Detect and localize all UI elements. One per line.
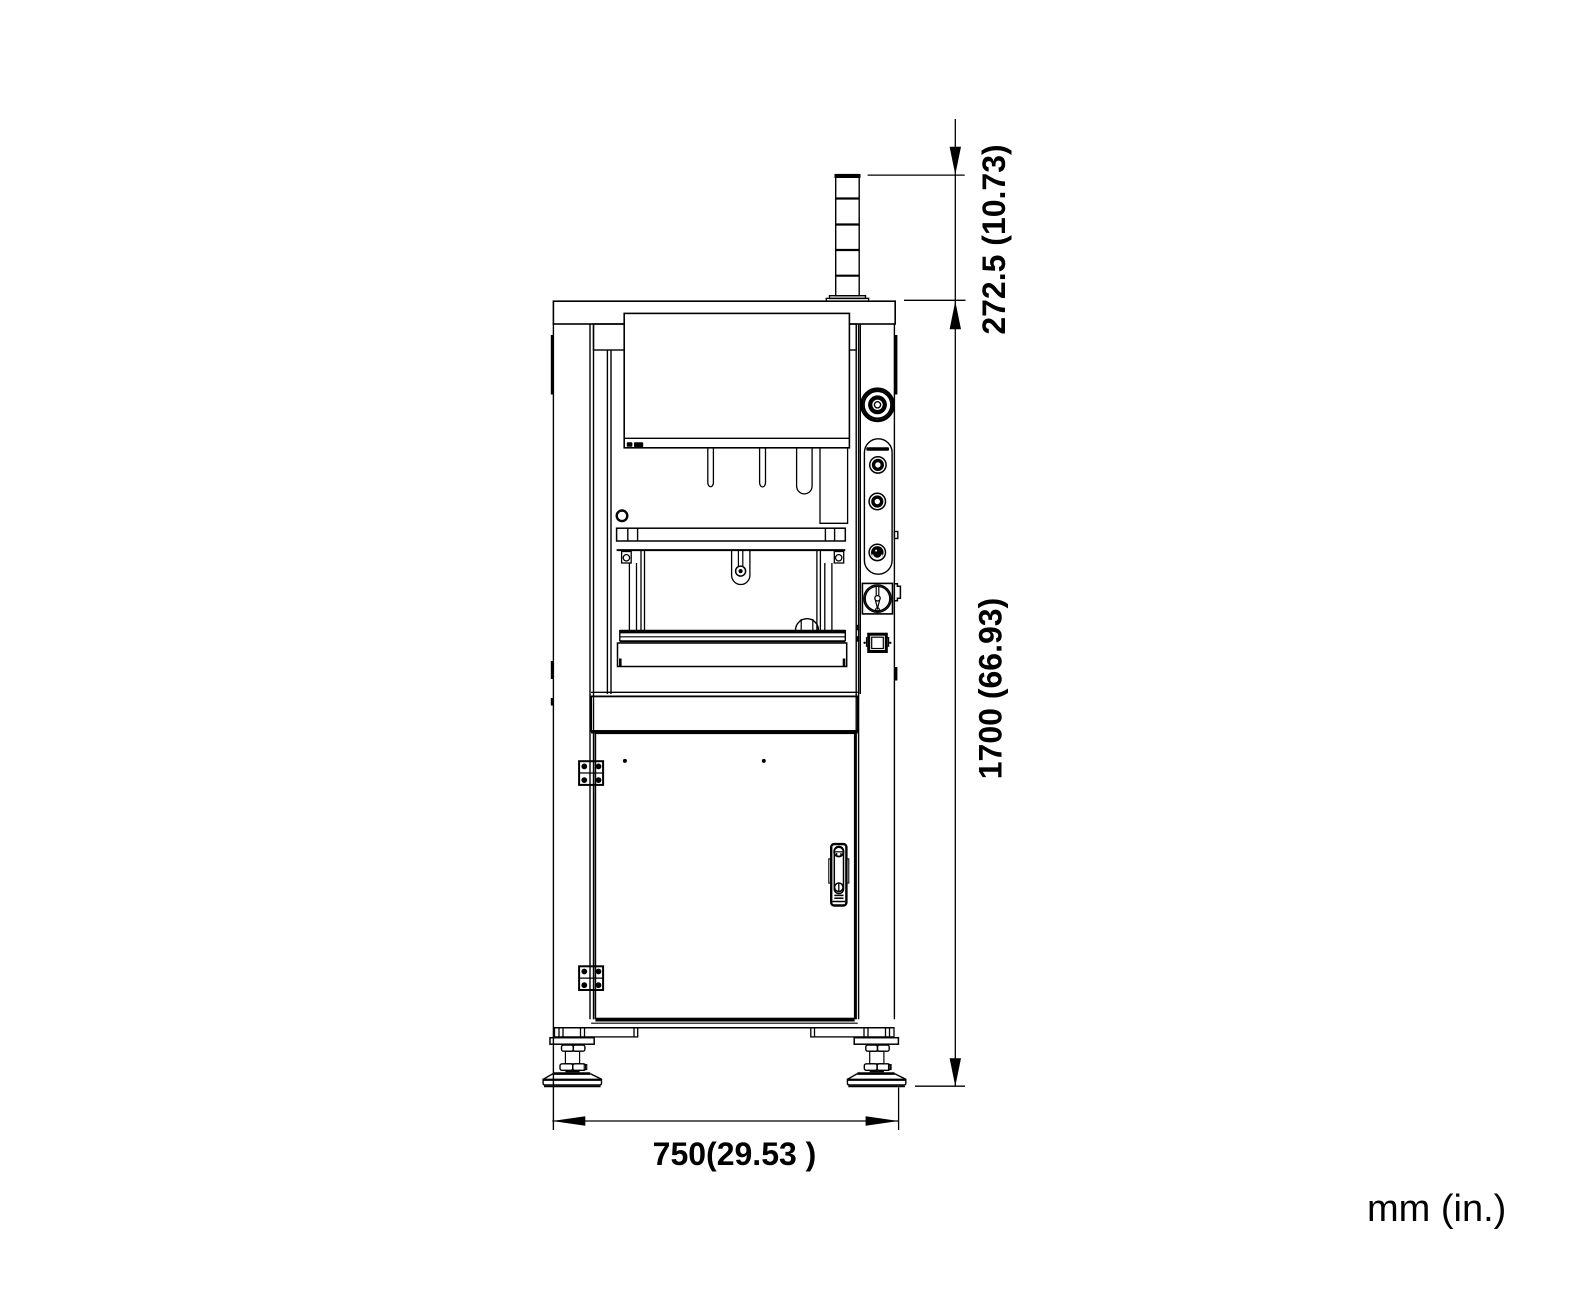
svg-text:272.5 (10.73): 272.5 (10.73) bbox=[976, 144, 1012, 334]
svg-text:mm (in.): mm (in.) bbox=[1367, 1188, 1506, 1230]
svg-text:1700 (66.93): 1700 (66.93) bbox=[973, 598, 1009, 779]
svg-text:750(29.53 ): 750(29.53 ) bbox=[653, 1136, 817, 1172]
